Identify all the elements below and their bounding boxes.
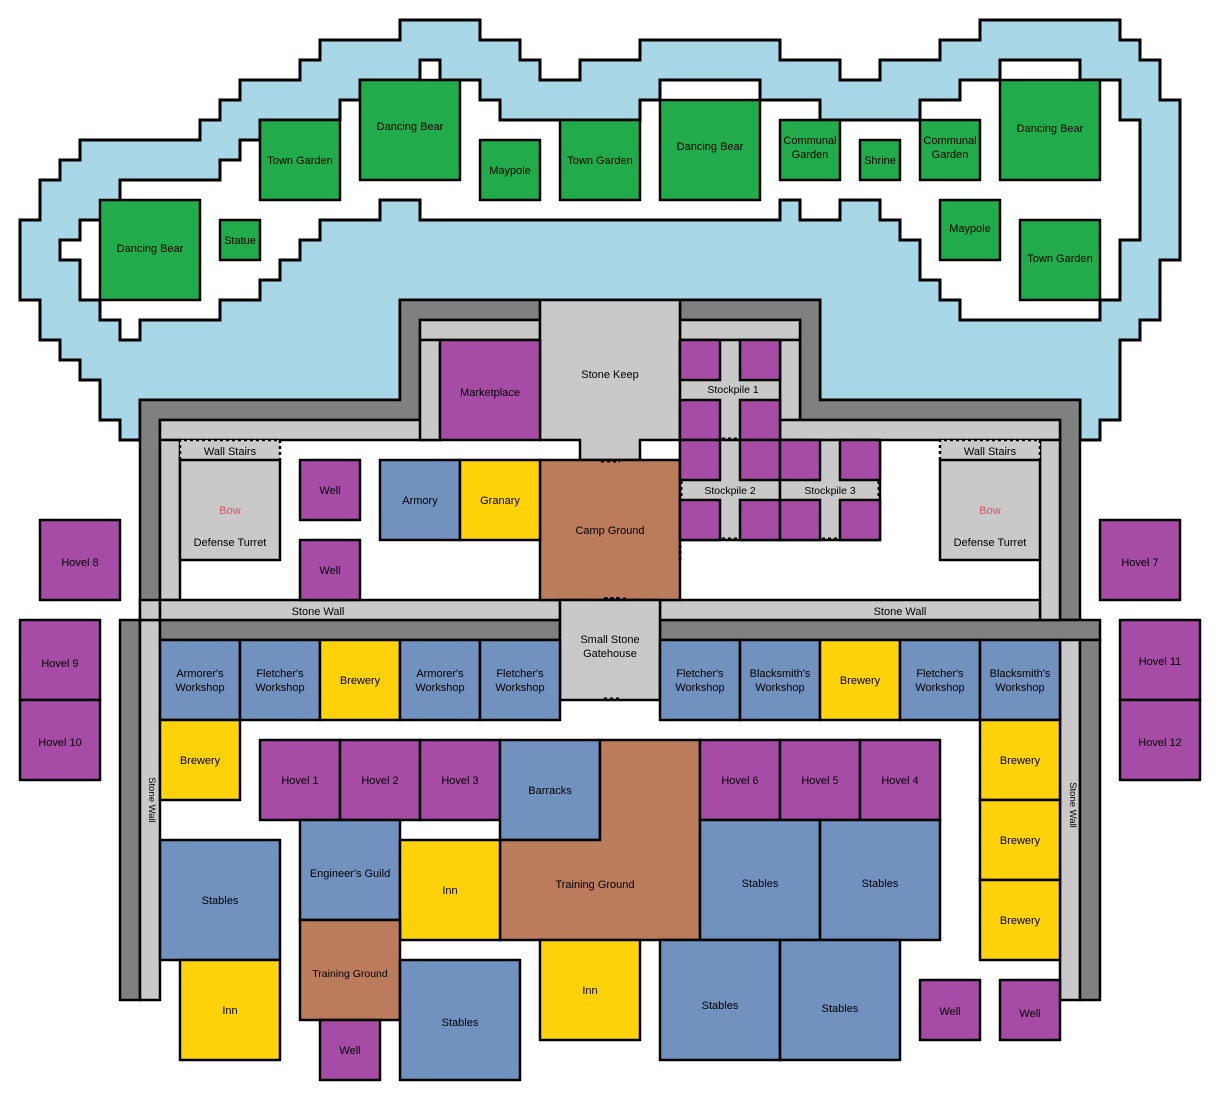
svg-text:Marketplace: Marketplace [460,387,520,399]
svg-text:Well: Well [939,1006,960,1018]
svg-text:Stables: Stables [442,1017,479,1029]
svg-text:Bow: Bow [219,505,240,517]
svg-text:Armory: Armory [402,495,438,507]
svg-text:Shrine: Shrine [864,155,896,167]
svg-text:Brewery: Brewery [180,755,221,767]
svg-text:Well: Well [1019,1008,1040,1020]
svg-text:Brewery: Brewery [340,675,381,687]
svg-text:Town Garden: Town Garden [267,155,332,167]
svg-text:Stables: Stables [742,878,779,890]
svg-text:Stockpile 1: Stockpile 1 [707,384,759,396]
svg-text:Inn: Inn [582,985,597,997]
svg-text:Hovel 8: Hovel 8 [61,557,98,569]
svg-text:Maypole: Maypole [949,223,991,235]
svg-text:Barracks: Barracks [528,785,572,797]
svg-text:Hovel 1: Hovel 1 [281,775,318,787]
svg-text:Brewery: Brewery [1000,755,1041,767]
svg-text:Defense Turret: Defense Turret [954,537,1027,549]
svg-text:Defense Turret: Defense Turret [194,537,267,549]
svg-text:Stone Wall: Stone Wall [292,606,345,618]
svg-text:Hovel 5: Hovel 5 [801,775,838,787]
svg-text:Training Ground: Training Ground [555,879,634,891]
svg-text:Well: Well [319,485,340,497]
svg-text:Hovel 3: Hovel 3 [441,775,478,787]
svg-text:Brewery: Brewery [840,675,881,687]
svg-text:Brewery: Brewery [1000,915,1041,927]
svg-text:Granary: Granary [480,495,520,507]
svg-text:Wall Stairs: Wall Stairs [204,446,257,458]
svg-text:Engineer's Guild: Engineer's Guild [310,868,390,880]
svg-text:Hovel 2: Hovel 2 [361,775,398,787]
svg-text:Dancing Bear: Dancing Bear [1017,123,1084,135]
svg-text:Stables: Stables [822,1003,859,1015]
svg-text:Stone Wall: Stone Wall [146,777,157,823]
svg-text:Well: Well [339,1045,360,1057]
svg-text:Wall Stairs: Wall Stairs [964,446,1017,458]
svg-text:Maypole: Maypole [489,165,531,177]
svg-text:Statue: Statue [224,235,256,247]
svg-text:Dancing Bear: Dancing Bear [117,243,184,255]
svg-text:Brewery: Brewery [1000,835,1041,847]
svg-text:Stables: Stables [862,878,899,890]
svg-text:Stockpile 2: Stockpile 2 [704,485,756,497]
svg-text:Town Garden: Town Garden [567,155,632,167]
svg-text:Stone Wall: Stone Wall [1067,782,1078,828]
svg-text:Hovel 12: Hovel 12 [1138,737,1181,749]
svg-text:Stables: Stables [702,1000,739,1012]
svg-text:Dancing Bear: Dancing Bear [677,141,744,153]
svg-text:Hovel 11: Hovel 11 [1139,656,1182,668]
svg-text:Camp Ground: Camp Ground [575,525,644,537]
svg-text:Hovel 10: Hovel 10 [38,737,81,749]
svg-text:Inn: Inn [222,1005,237,1017]
svg-text:Hovel 6: Hovel 6 [721,775,758,787]
svg-text:Hovel 7: Hovel 7 [1121,557,1158,569]
svg-text:Inn: Inn [442,885,457,897]
svg-text:Hovel 9: Hovel 9 [41,658,78,670]
svg-text:Stone Wall: Stone Wall [874,606,927,618]
svg-text:Stockpile 3: Stockpile 3 [804,485,856,497]
svg-text:Stone Keep: Stone Keep [581,369,639,381]
svg-text:Stables: Stables [202,895,239,907]
svg-text:Hovel 4: Hovel 4 [881,775,918,787]
svg-text:Bow: Bow [979,505,1000,517]
svg-text:Town Garden: Town Garden [1027,253,1092,265]
svg-text:Training Ground: Training Ground [312,968,388,980]
svg-text:Well: Well [319,565,340,577]
svg-text:Dancing Bear: Dancing Bear [377,121,444,133]
